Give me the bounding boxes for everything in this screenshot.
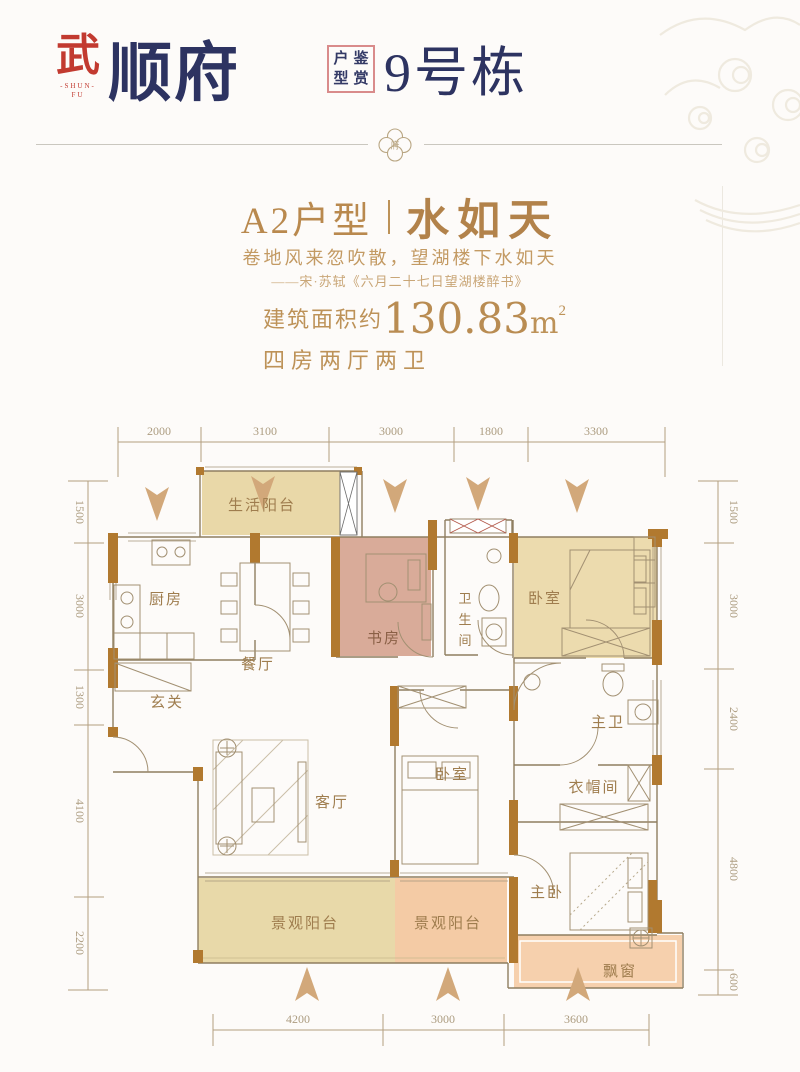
dim-top: 3100 bbox=[253, 424, 277, 438]
room-label-living: 客厅 bbox=[315, 794, 349, 811]
floor-plan: 府 bbox=[0, 0, 800, 1072]
dim-top: 3300 bbox=[584, 424, 608, 438]
dim-top: 2000 bbox=[147, 424, 171, 438]
room-label-cloakroom: 衣帽间 bbox=[568, 779, 619, 796]
dim-bottom: 3600 bbox=[564, 1012, 588, 1026]
room-label-bedroom1: 卧室 bbox=[528, 590, 562, 607]
dim-right: 600 bbox=[727, 973, 741, 991]
ornament-character: 府 bbox=[390, 140, 399, 151]
room-label-master-bath: 主卫 bbox=[591, 714, 625, 731]
room-label-bedroom2: 卧室 bbox=[435, 766, 469, 783]
room-label-bay-window: 飘窗 bbox=[603, 962, 637, 980]
room-label-service-balcony: 生活阳台 bbox=[228, 497, 296, 514]
dim-right: 4800 bbox=[727, 857, 741, 881]
dim-right: 1500 bbox=[727, 500, 741, 524]
dim-left: 1500 bbox=[73, 500, 87, 524]
dim-top: 3000 bbox=[379, 424, 403, 438]
dim-top: 1800 bbox=[479, 424, 503, 438]
dim-bottom: 3000 bbox=[431, 1012, 455, 1026]
room-label-kitchen: 厨房 bbox=[149, 591, 183, 608]
dim-left: 4100 bbox=[73, 799, 87, 823]
room-label-view-balcony-left: 景观阳台 bbox=[271, 915, 339, 932]
shaft-symbols bbox=[340, 472, 506, 535]
room-label-bath1: 卫 bbox=[458, 591, 471, 606]
poster-page: 武 -SHUN- FU 顺府 户 鉴 型 赏 9号栋 A2户型 水如天 卷地风来… bbox=[0, 0, 800, 1072]
dim-left: 1300 bbox=[73, 685, 87, 709]
room-label-bath1: 生 bbox=[458, 612, 471, 627]
dim-right: 2400 bbox=[727, 707, 741, 731]
room-label-view-balcony-right: 景观阳台 bbox=[414, 915, 482, 932]
room-label-master-bedroom: 主卧 bbox=[530, 884, 564, 901]
room-label-study: 书房 bbox=[367, 630, 401, 647]
dim-left: 3000 bbox=[73, 594, 87, 618]
dim-right: 3000 bbox=[727, 594, 741, 618]
dim-bottom: 4200 bbox=[286, 1012, 310, 1026]
room-label-bath1: 间 bbox=[458, 633, 471, 648]
divider-ornament: 府 bbox=[379, 129, 411, 161]
dim-left: 2200 bbox=[73, 931, 87, 955]
cloud-decoration bbox=[660, 18, 800, 232]
room-label-entry: 玄关 bbox=[150, 694, 184, 711]
room-label-dining: 餐厅 bbox=[241, 656, 275, 673]
